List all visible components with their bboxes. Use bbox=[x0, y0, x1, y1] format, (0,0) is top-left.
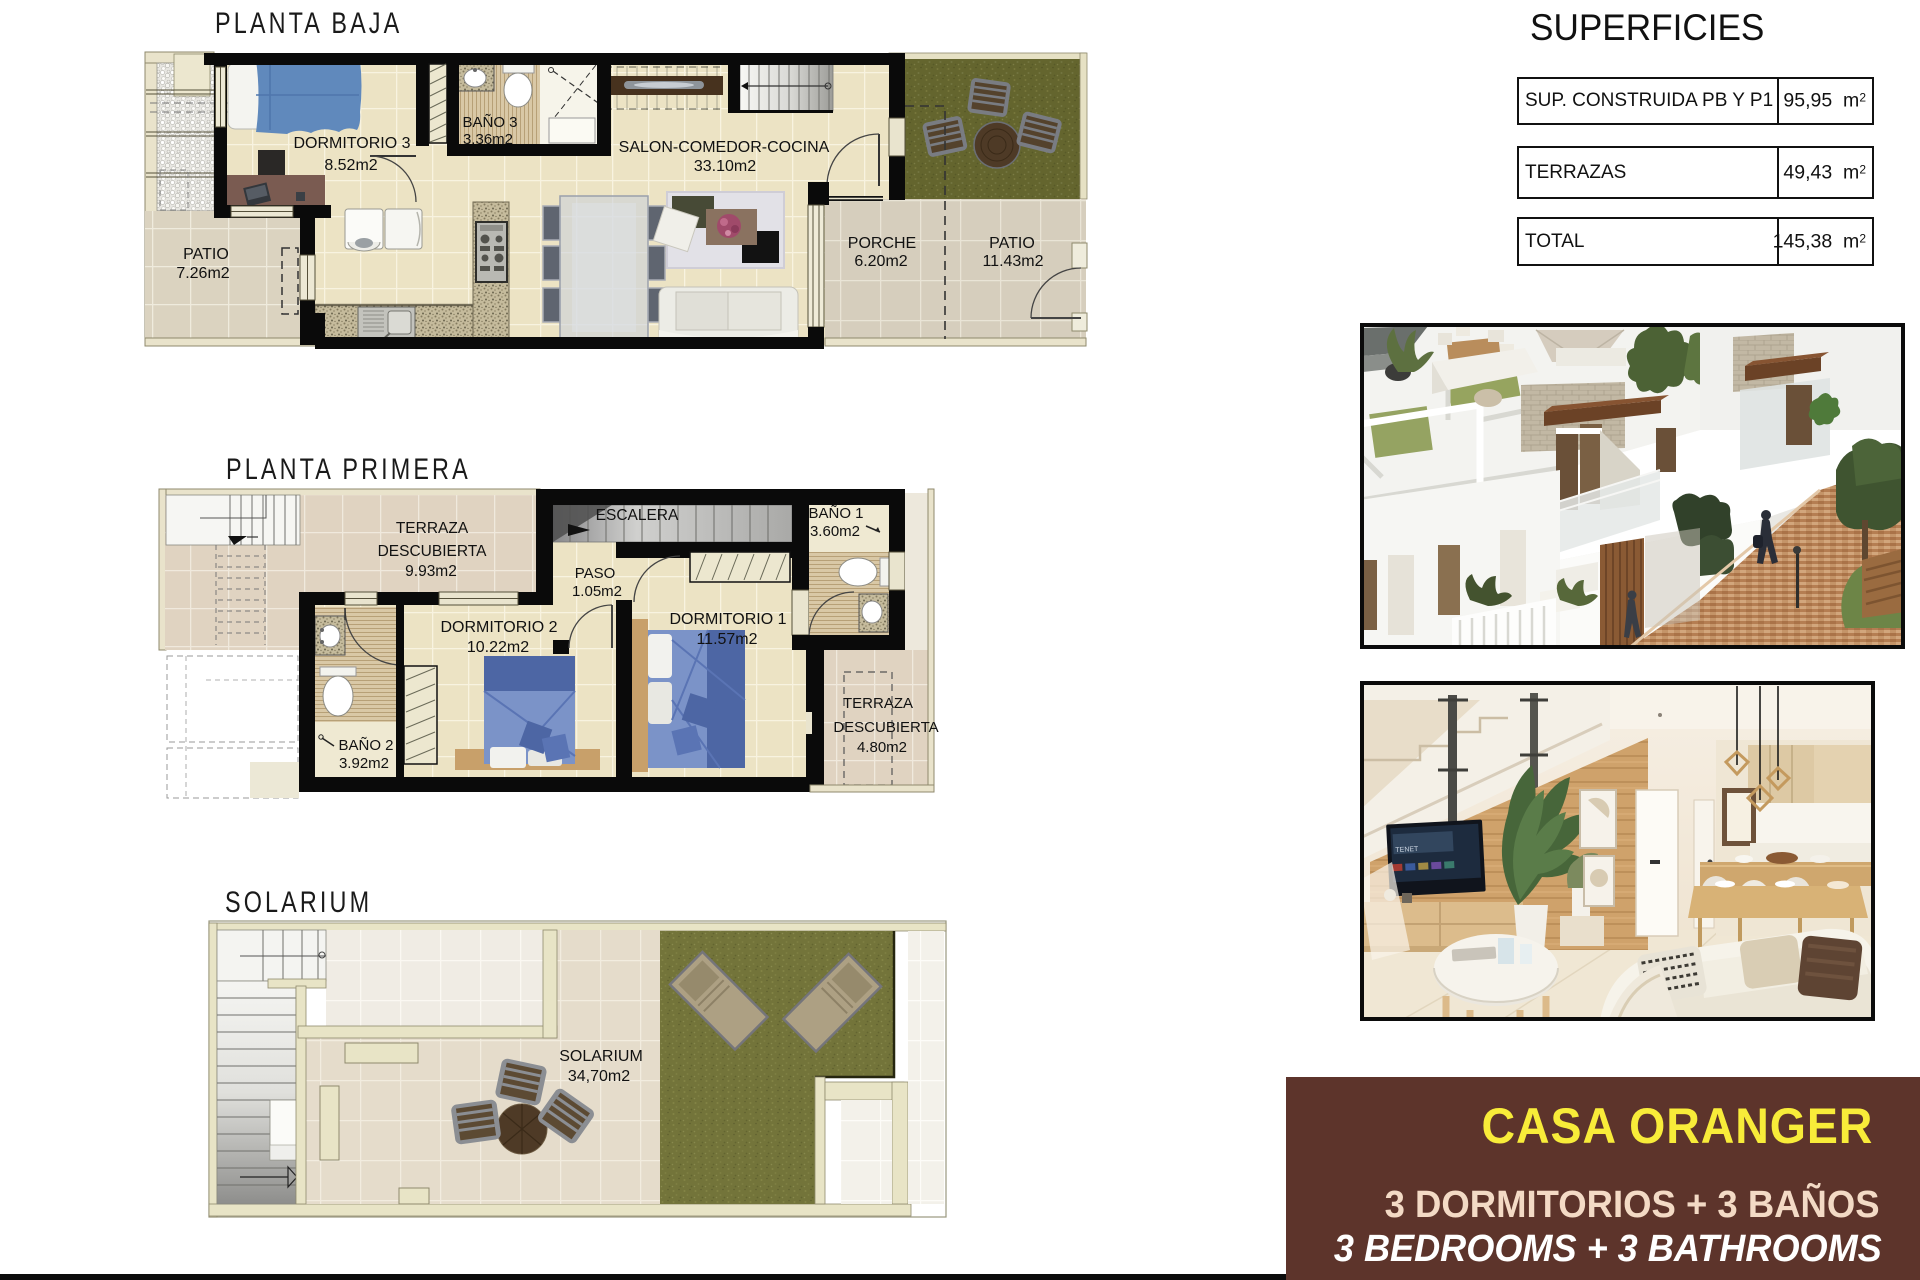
svg-text:4.80m2: 4.80m2 bbox=[857, 739, 907, 756]
svg-text:PATIO: PATIO bbox=[989, 235, 1035, 252]
svg-text:11.43m2: 11.43m2 bbox=[982, 253, 1043, 270]
svg-text:3.92m2: 3.92m2 bbox=[339, 755, 389, 772]
svg-text:DESCUBIERTA: DESCUBIERTA bbox=[378, 543, 487, 560]
svg-text:1.05m2: 1.05m2 bbox=[572, 583, 622, 600]
svg-text:34,70m2: 34,70m2 bbox=[568, 1068, 630, 1085]
svg-text:PORCHE: PORCHE bbox=[848, 235, 916, 252]
svg-text:11.57m2: 11.57m2 bbox=[696, 631, 757, 648]
svg-text:9.93m2: 9.93m2 bbox=[405, 563, 457, 580]
svg-text:7.26m2: 7.26m2 bbox=[176, 265, 229, 282]
svg-text:DESCUBIERTA: DESCUBIERTA bbox=[833, 719, 938, 736]
svg-text:BAÑO 2: BAÑO 2 bbox=[338, 737, 393, 754]
svg-text:SOLARIUM: SOLARIUM bbox=[559, 1048, 643, 1065]
svg-text:6.20m2: 6.20m2 bbox=[854, 253, 907, 270]
svg-text:BAÑO 3: BAÑO 3 bbox=[462, 114, 517, 131]
svg-text:8.52m2: 8.52m2 bbox=[324, 157, 377, 174]
svg-text:PATIO: PATIO bbox=[183, 246, 229, 263]
svg-text:10.22m2: 10.22m2 bbox=[467, 639, 529, 656]
svg-text:3.60m2: 3.60m2 bbox=[810, 523, 860, 540]
svg-text:DORMITORIO 2: DORMITORIO 2 bbox=[440, 619, 557, 636]
svg-text:DORMITORIO 3: DORMITORIO 3 bbox=[293, 135, 410, 152]
svg-text:TENET: TENET bbox=[1395, 846, 1419, 854]
svg-text:PASO: PASO bbox=[575, 565, 616, 582]
svg-text:33.10m2: 33.10m2 bbox=[694, 158, 756, 175]
svg-text:TERRAZA: TERRAZA bbox=[396, 520, 469, 537]
svg-text:ESCALERA: ESCALERA bbox=[596, 507, 679, 524]
svg-text:TERRAZA: TERRAZA bbox=[843, 695, 913, 712]
svg-text:BAÑO 1: BAÑO 1 bbox=[808, 505, 863, 522]
svg-text:DORMITORIO 1: DORMITORIO 1 bbox=[669, 611, 786, 628]
svg-text:SALON-COMEDOR-COCINA: SALON-COMEDOR-COCINA bbox=[619, 139, 830, 156]
